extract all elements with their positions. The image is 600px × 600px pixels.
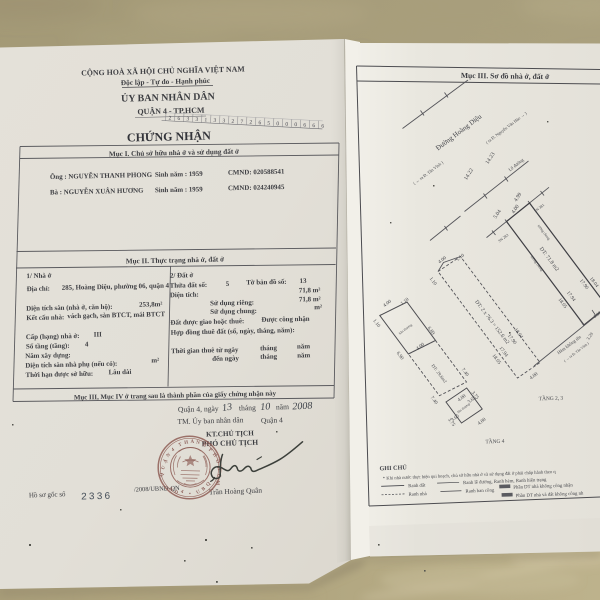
svg-text:Số tầng (tầng):: Số tầng (tầng): [26,343,70,351]
svg-text:III: III [94,331,103,338]
svg-text:CMND: 024240945: CMND: 024240945 [228,184,285,192]
svg-text:71,8 m²: 71,8 m² [299,287,321,294]
svg-text:Thời hạn được sở hữu:: Thời hạn được sở hữu: [26,371,94,379]
svg-text:ỦY BAN NHÂN DÂN: ỦY BAN NHÂN DÂN [121,90,216,104]
svg-text:năm: năm [297,352,310,359]
svg-text:Cấp (hạng) nhà ở:: Cấp (hạng) nhà ở: [26,333,80,341]
svg-text:Thửa đất số:: Thửa đất số: [170,282,208,290]
svg-text:Hồ sơ gốc số: Hồ sơ gốc số [29,490,66,499]
svg-text:Quận 4: Quận 4 [261,415,283,425]
svg-text:TM. Ủy ban nhân dân: TM. Ủy ban nhân dân [177,414,244,426]
svg-text:Tờ bản đồ số:: Tờ bản đồ số: [246,279,287,287]
svg-text:Sử dụng chung:: Sử dụng chung: [210,308,257,316]
svg-text:71,8 m²: 71,8 m² [299,296,321,303]
svg-text:M: M [214,480,219,485]
svg-text:Kết cấu nhà:: Kết cấu nhà: [26,314,64,322]
svg-text:m²: m² [151,357,159,364]
svg-text:CMND: 020588541: CMND: 020588541 [228,169,285,177]
svg-text:CHỨNG NHẬN: CHỨNG NHẬN [127,128,212,144]
svg-text:Sử dụng riêng:: Sử dụng riêng: [210,299,254,307]
svg-text:10: 10 [260,401,271,413]
svg-text:1/ Nhà ở: 1/ Nhà ở [26,273,51,281]
svg-text:Năm xây dựng:: Năm xây dựng: [25,352,71,360]
svg-text:GHI CHÚ: GHI CHÚ [379,463,407,472]
svg-text:tháng: tháng [239,403,256,412]
svg-text:▪: ▪ [189,492,191,497]
svg-text:tháng: tháng [260,353,278,360]
svg-text:tháng: tháng [260,345,278,352]
svg-text:Địa chỉ:: Địa chỉ: [27,286,50,293]
svg-text:2336: 2336 [81,492,112,504]
svg-text:13: 13 [221,402,232,414]
svg-text:13: 13 [300,278,308,285]
svg-text:2008: 2008 [292,400,313,412]
svg-text:Sinh năm : 1959: Sinh năm : 1959 [155,186,203,194]
svg-text:Lâu dài: Lâu dài [108,369,131,376]
svg-text:Ranh nhà: Ranh nhà [408,492,427,498]
svg-text:253,8m²: 253,8m² [139,301,162,308]
svg-text:năm: năm [276,402,289,411]
svg-text:2/ Đất ở: 2/ Đất ở [170,272,194,279]
svg-text:Được công nhận: Được công nhận [261,316,309,324]
svg-text:Quận 4, ngày: Quận 4, ngày [178,404,219,414]
svg-text:đến ngày: đến ngày [212,355,239,363]
svg-text:Sinh năm : 1959: Sinh năm : 1959 [155,171,203,179]
svg-text:À: À [191,439,195,445]
svg-text:Thời gian thuê từ ngày: Thời gian thuê từ ngày [171,347,239,355]
svg-text:Mục III. Sơ đồ nhà ở, đất ở: Mục III. Sơ đồ nhà ở, đất ở [461,71,550,81]
svg-text:Trần Hoàng Quân: Trần Hoàng Quân [209,486,263,497]
svg-text:Diện tích:: Diện tích: [170,292,199,300]
svg-text:năm: năm [297,343,310,350]
svg-text:Ranh đất: Ranh đất [408,484,426,490]
svg-text:m²: m² [314,304,322,311]
